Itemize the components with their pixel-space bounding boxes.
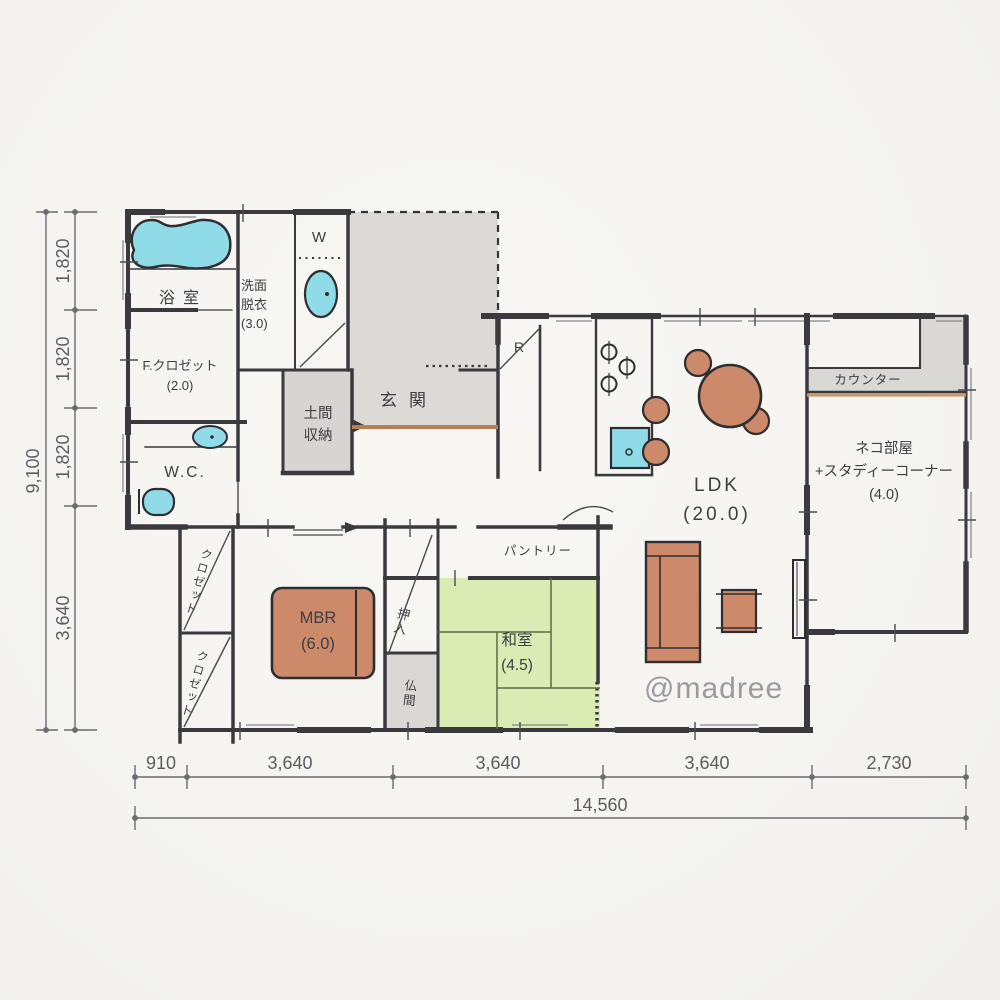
room-label-ldk: LDK (20.0) (655, 472, 779, 529)
dim-bottom-total: 14,560 (540, 795, 660, 816)
dim-bottom-1: 910 (131, 753, 191, 774)
dim-bottom-5: 2,730 (839, 753, 939, 774)
counter-stool (643, 397, 669, 423)
ldk-door-arc (563, 507, 613, 520)
dim-left-3: 1,820 (53, 409, 75, 505)
floor-plan-sketch: 浴室 洗面 脱衣 (3.0) W F.クロゼット (2.0) W.C. 土間 収… (0, 0, 1000, 1000)
tv-board (793, 560, 805, 638)
dim-left-4: 3,640 (53, 570, 75, 666)
washbasin (305, 271, 337, 317)
room-label-mbr: MBR (6.0) (268, 606, 368, 657)
mbr-door-arrow (345, 522, 359, 533)
room-label-pantry: パントリー (480, 542, 596, 561)
room-label-bath: 浴室 (128, 287, 238, 311)
room-label-family-closet: F.クロゼット (2.0) (122, 356, 238, 395)
washroom-door-swing (300, 323, 345, 367)
dining-chair (685, 350, 711, 376)
side-table (722, 590, 756, 632)
room-label-washitsu: 和室 (4.5) (467, 629, 567, 679)
counter-stool-2 (643, 439, 669, 465)
label-counter: カウンター (810, 371, 926, 390)
dim-left-2: 1,820 (53, 311, 75, 407)
dim-left-total: 9,100 (23, 423, 45, 519)
toilet (143, 489, 174, 515)
dim-bottom-4: 3,640 (657, 753, 757, 774)
bathtub (132, 220, 231, 269)
label-refrigerator: R (508, 337, 530, 358)
room-label-cat-room: ネコ部屋 +スタディーコーナー (4.0) (800, 438, 968, 508)
watermark: @madree (644, 672, 783, 706)
dining-table (699, 365, 761, 427)
room-label-genkan: 玄関 (350, 388, 468, 414)
dim-left-1: 1,820 (53, 213, 75, 309)
room-label-wc: W.C. (145, 461, 225, 484)
wc-sink (193, 426, 227, 448)
sofa (646, 542, 700, 662)
dim-bottom-3: 3,640 (448, 753, 548, 774)
counter-corner (920, 318, 966, 370)
dim-bottom-2: 3,640 (240, 753, 340, 774)
room-label-washer: W (307, 227, 331, 250)
room-label-doma-storage: 土間 収納 (289, 404, 347, 448)
room-label-washroom: 洗面 脱衣 (3.0) (241, 277, 293, 334)
